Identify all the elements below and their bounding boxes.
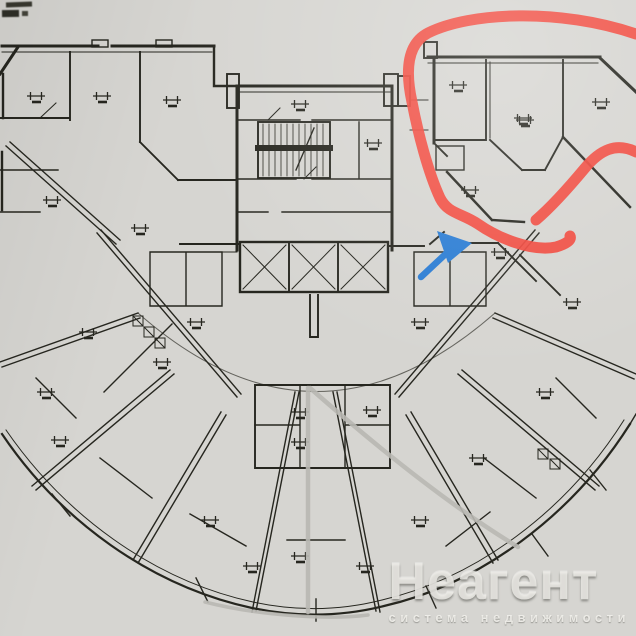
corner-stamp-mark [2, 10, 19, 17]
corner-stamp [2, 2, 36, 22]
corner-stamp-mark [22, 11, 28, 16]
corner-stamp-mark [6, 2, 32, 8]
floor-plan-drawing [0, 0, 636, 636]
scanned-floor-plan-page: Неагент система недвижимости [0, 0, 636, 636]
